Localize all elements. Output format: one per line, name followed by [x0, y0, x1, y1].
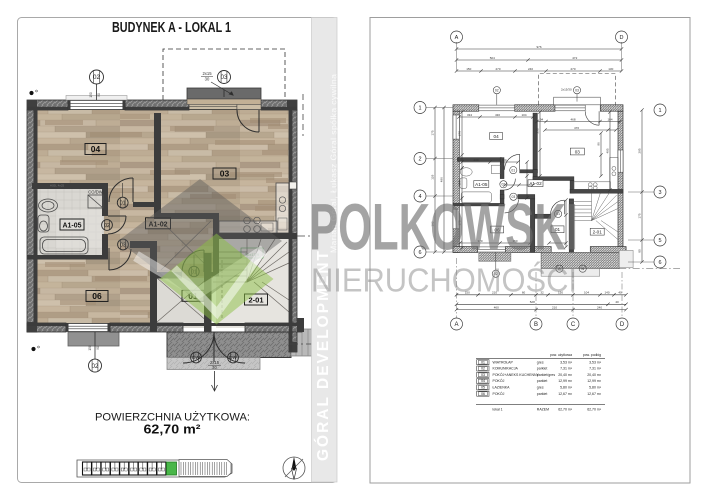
svg-text:03: 03 [575, 89, 579, 93]
svg-text:104: 104 [501, 158, 506, 162]
svg-text:KOMUNIKACJA: KOMUNIKACJA [493, 367, 519, 371]
svg-text:D: D [620, 35, 624, 41]
svg-text:RAZEM: RAZEM [537, 408, 549, 412]
svg-text:02: 02 [93, 75, 100, 81]
svg-text:06: 06 [92, 291, 102, 301]
svg-text:12,67 m²: 12,67 m² [558, 392, 573, 396]
svg-text:460: 460 [494, 305, 499, 309]
svg-text:03: 03 [221, 75, 228, 81]
svg-text:03: 03 [220, 169, 230, 179]
svg-text:01: 01 [481, 360, 485, 364]
svg-text:104: 104 [521, 113, 526, 117]
svg-text:ŁAZIENKA: ŁAZIENKA [493, 386, 511, 390]
svg-text:6: 6 [658, 260, 661, 266]
svg-text:468: 468 [570, 117, 575, 121]
svg-text:A: A [455, 35, 459, 41]
svg-text:parkiet: parkiet [537, 379, 548, 383]
svg-text:3: 3 [658, 190, 661, 196]
svg-text:05: 05 [481, 386, 485, 390]
svg-text:30: 30 [212, 365, 217, 370]
svg-text:01: 01 [511, 168, 515, 172]
svg-text:130: 130 [608, 67, 613, 71]
svg-text:496: 496 [440, 177, 444, 182]
svg-text:80: 80 [638, 249, 642, 253]
svg-text:gres: gres [537, 386, 544, 390]
svg-text:210: 210 [552, 305, 557, 309]
svg-text:94: 94 [540, 117, 544, 121]
svg-text:528: 528 [530, 300, 535, 304]
svg-text:04: 04 [481, 379, 485, 383]
svg-text:5,80 m²: 5,80 m² [589, 386, 602, 390]
svg-text:3,53 m²: 3,53 m² [589, 360, 602, 364]
svg-text:62,70 m²: 62,70 m² [558, 408, 573, 412]
svg-text:A1-05: A1-05 [62, 223, 81, 230]
svg-text:01: 01 [120, 200, 126, 206]
svg-text:POKÓJ: POKÓJ [493, 391, 505, 396]
svg-text:476: 476 [574, 126, 579, 130]
svg-text:2: 2 [418, 157, 421, 163]
svg-text:2-01: 2-01 [593, 230, 603, 235]
svg-text:3,53 m²: 3,53 m² [560, 360, 573, 364]
svg-text:03: 03 [481, 373, 485, 377]
svg-text:495: 495 [606, 148, 610, 153]
svg-text:12,99 m²: 12,99 m² [587, 379, 602, 383]
svg-text:pow. użytkowa: pow. użytkowa [550, 353, 572, 357]
svg-text:1: 1 [658, 108, 661, 114]
svg-text:230: 230 [473, 158, 478, 162]
svg-text:7,31 m²: 7,31 m² [589, 367, 602, 371]
svg-text:472: 472 [572, 56, 577, 60]
svg-text:02: 02 [104, 223, 110, 229]
svg-text:parkiet/gres: parkiet/gres [537, 373, 556, 377]
svg-text:POLKOWSKI: POLKOWSKI [309, 190, 578, 264]
svg-text:A1-05: A1-05 [475, 182, 488, 187]
svg-text:lokal 1: lokal 1 [493, 408, 503, 412]
svg-text:D: D [620, 322, 625, 328]
svg-text:175: 175 [638, 213, 642, 218]
svg-text:BUDYNEK A - LOKAL 1: BUDYNEK A - LOKAL 1 [112, 20, 231, 36]
svg-text:62,70 m²: 62,70 m² [144, 422, 202, 437]
svg-text:240: 240 [528, 67, 533, 71]
svg-text:WIATROŁAP: WIATROŁAP [493, 360, 514, 364]
svg-text:96: 96 [597, 142, 601, 146]
svg-text:976: 976 [536, 45, 541, 49]
svg-text:253: 253 [536, 128, 540, 133]
svg-text:2x15/30: 2x15/30 [561, 87, 572, 91]
svg-text:gres: gres [537, 360, 544, 364]
svg-text:504: 504 [490, 56, 495, 60]
svg-text:CO/DW: CO/DW [88, 190, 102, 195]
svg-text:20,40 m²: 20,40 m² [558, 373, 573, 377]
svg-text:POKÓJ+ANEKS KUCHENNY: POKÓJ+ANEKS KUCHENNY [493, 372, 540, 377]
svg-text:A: A [454, 322, 458, 328]
svg-text:DW: DW [192, 355, 200, 360]
svg-text:pow. podłóg: pow. podłóg [583, 353, 601, 357]
svg-text:02: 02 [495, 89, 499, 93]
svg-text:40: 40 [615, 300, 619, 304]
svg-text:parkiet: parkiet [537, 367, 548, 371]
svg-text:90: 90 [97, 93, 101, 97]
svg-text:02: 02 [92, 364, 99, 370]
svg-text:295: 295 [638, 148, 642, 153]
svg-text:H05L 4x25: H05L 4x25 [50, 184, 65, 188]
svg-text:150: 150 [89, 92, 93, 98]
svg-text:NIERUCHOMOŚCI: NIERUCHOMOŚCI [311, 261, 577, 299]
svg-text:270: 270 [495, 67, 500, 71]
svg-text:03: 03 [575, 149, 581, 154]
svg-text:120: 120 [458, 180, 462, 185]
svg-text:parkiet: parkiet [537, 392, 548, 396]
svg-text:02: 02 [502, 183, 506, 187]
svg-text:12,99 m²: 12,99 m² [558, 379, 573, 383]
svg-text:30: 30 [205, 77, 210, 82]
svg-text:DW: DW [229, 355, 237, 360]
svg-text:270: 270 [458, 131, 462, 136]
svg-text:240: 240 [597, 305, 602, 309]
svg-text:175: 175 [431, 130, 435, 135]
svg-text:140: 140 [604, 291, 609, 295]
svg-text:430: 430 [495, 113, 500, 117]
svg-text:04: 04 [91, 144, 101, 154]
svg-text:POKÓJ: POKÓJ [493, 378, 505, 383]
svg-text:06: 06 [481, 392, 485, 396]
svg-text:5,80 m²: 5,80 m² [560, 386, 573, 390]
svg-text:5: 5 [658, 238, 661, 244]
svg-text:334: 334 [467, 113, 472, 117]
svg-text:270: 270 [570, 67, 575, 71]
svg-text:150: 150 [466, 67, 471, 71]
svg-text:7,31 m²: 7,31 m² [560, 367, 573, 371]
svg-text:150: 150 [88, 345, 92, 351]
svg-text:C: C [571, 322, 576, 328]
svg-text:129: 129 [431, 174, 435, 179]
svg-text:62,70 m²: 62,70 m² [587, 408, 602, 412]
svg-text:20,40 m²: 20,40 m² [587, 373, 602, 377]
svg-text:104: 104 [584, 291, 589, 295]
svg-text:B: B [534, 322, 538, 328]
svg-text:90: 90 [96, 346, 100, 350]
svg-text:2x15: 2x15 [202, 71, 212, 76]
svg-text:1: 1 [418, 106, 421, 112]
svg-text:04: 04 [494, 134, 500, 139]
svg-text:12,67 m²: 12,67 m² [587, 392, 602, 396]
svg-text:40: 40 [618, 291, 622, 295]
svg-text:02: 02 [481, 367, 485, 371]
